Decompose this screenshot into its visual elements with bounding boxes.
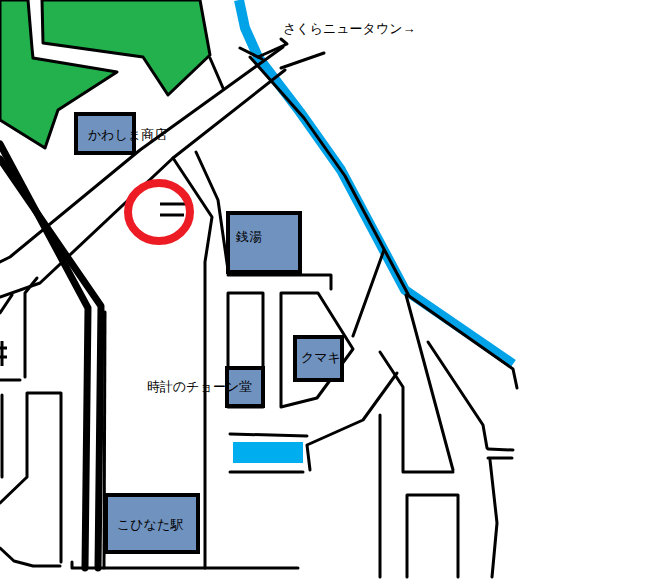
sento-label: 銭湯 xyxy=(235,229,262,244)
road-right-curve xyxy=(428,342,487,448)
road-to-newtown xyxy=(281,53,324,68)
kohinata-label: こひなた駅 xyxy=(117,517,183,532)
road-right-horizontal-1 xyxy=(488,449,513,450)
kumaki-label: クマキ xyxy=(301,350,341,365)
pool-block-top xyxy=(230,434,307,436)
water-rect xyxy=(233,442,303,463)
building-sento: 銭湯 xyxy=(228,213,300,272)
railway-line-1 xyxy=(0,144,88,568)
railway xyxy=(0,144,101,568)
tokei-chondo-label: 時計のチョーン堂 xyxy=(147,379,252,394)
building-kawashima: かわしま商店 xyxy=(76,114,167,153)
street-right-edge xyxy=(196,152,228,270)
sakura-newtown-label: さくらニュータウン→ xyxy=(283,21,415,36)
map-canvas: かわしま商店 銭湯 クマキ こひなた駅 さくらニュータウン→ 時計のチョーン堂 xyxy=(0,0,657,579)
road-right-of-sento xyxy=(353,250,384,336)
hand-drawn-map: かわしま商店 銭湯 クマキ こひなた駅 さくらニュータウン→ 時計のチョーン堂 xyxy=(0,0,657,579)
left-block-diag xyxy=(0,478,26,503)
road-under-sento xyxy=(228,275,331,289)
bottom-block-edge xyxy=(407,495,458,577)
building-kumaki: クマキ xyxy=(295,337,342,380)
left-bottom-road xyxy=(0,548,60,566)
left-block-a xyxy=(25,278,37,377)
highlight-circle xyxy=(128,183,190,241)
kawashima-label: かわしま商店 xyxy=(88,127,167,142)
building-kohinata-station: こひなた駅 xyxy=(106,495,198,552)
left-block-rect xyxy=(27,393,61,562)
bottom-horizontal-road xyxy=(72,562,298,568)
road-right-to-bottom xyxy=(490,460,497,577)
park-corner-link xyxy=(210,58,223,88)
right-block-edge xyxy=(380,352,453,472)
